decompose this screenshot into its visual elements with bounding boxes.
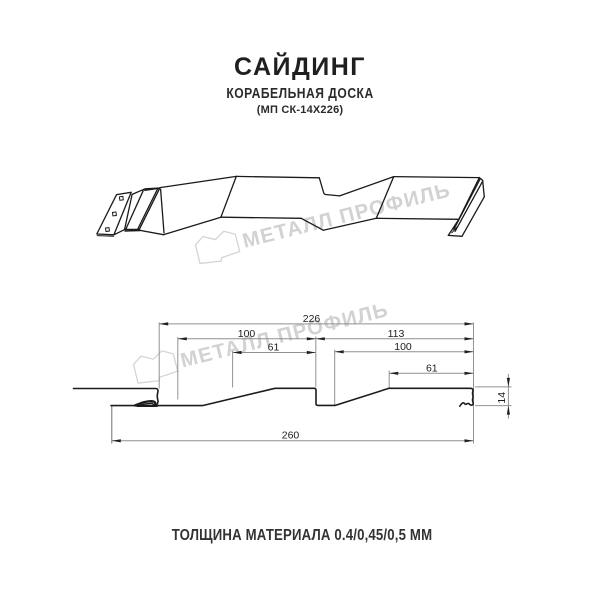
svg-text:113: 113 — [388, 328, 405, 340]
svg-text:МЕТАЛЛ ПРОФИЛЬ: МЕТАЛЛ ПРОФИЛЬ — [178, 298, 391, 372]
svg-text:100: 100 — [394, 341, 412, 353]
svg-text:260: 260 — [282, 430, 300, 442]
svg-text:226: 226 — [303, 313, 321, 325]
svg-text:61: 61 — [426, 362, 438, 374]
svg-text:61: 61 — [268, 342, 280, 354]
svg-text:14: 14 — [496, 392, 508, 404]
svg-text:МЕТАЛЛ ПРОФИЛЬ: МЕТАЛЛ ПРОФИЛЬ — [240, 178, 453, 252]
svg-text:100: 100 — [238, 328, 256, 340]
